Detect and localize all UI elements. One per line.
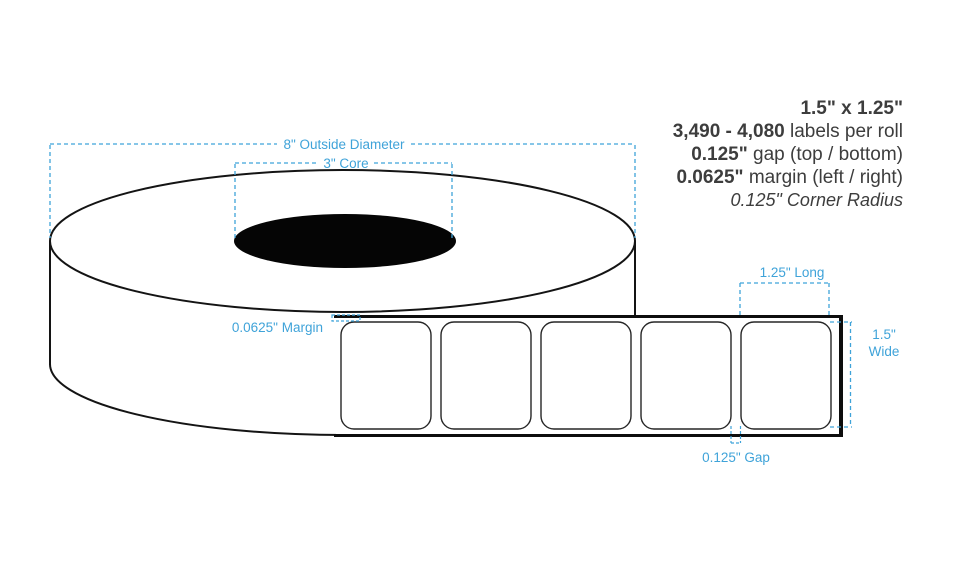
spec-size-value: 1.5" x 1.25"	[800, 98, 903, 119]
spec-size-line: 1.5" x 1.25"	[673, 97, 903, 120]
label-width-label-line1: 1.5"	[872, 327, 896, 342]
margin-label: 0.0625" Margin	[232, 320, 323, 335]
roll-core-hole	[234, 214, 456, 268]
gap-label: 0.125" Gap	[702, 450, 770, 465]
diagram-canvas: 8" Outside Diameter 3" Core 0.0625" Marg…	[0, 0, 958, 565]
label-die-3	[541, 322, 631, 429]
label-length-dimension: 1.25" Long	[740, 265, 829, 315]
spec-gap-line: 0.125" gap (top / bottom)	[673, 143, 903, 166]
label-die-5	[741, 322, 831, 429]
spec-count-text: labels per roll	[785, 121, 903, 142]
spec-count-value: 3,490 - 4,080	[673, 121, 785, 142]
label-length-label: 1.25" Long	[760, 265, 825, 280]
spec-margin-line: 0.0625" margin (left / right)	[673, 166, 903, 189]
label-width-label-line2: Wide	[869, 344, 900, 359]
spec-gap-value: 0.125"	[691, 144, 748, 165]
label-die-4	[641, 322, 731, 429]
spec-margin-text: margin (left / right)	[744, 167, 903, 188]
spec-margin-value: 0.0625"	[676, 167, 743, 188]
core-label: 3" Core	[323, 156, 368, 171]
outside-diameter-label: 8" Outside Diameter	[283, 137, 405, 152]
label-die-2	[441, 322, 531, 429]
spec-corner-radius-line: 0.125" Corner Radius	[673, 189, 903, 212]
labels-group	[341, 322, 831, 429]
spec-summary: 1.5" x 1.25" 3,490 - 4,080 labels per ro…	[673, 97, 903, 212]
label-die-1	[341, 322, 431, 429]
label-roll-diagram: 8" Outside Diameter 3" Core 0.0625" Marg…	[0, 0, 958, 565]
spec-count-line: 3,490 - 4,080 labels per roll	[673, 120, 903, 143]
spec-gap-text: gap (top / bottom)	[748, 144, 903, 165]
